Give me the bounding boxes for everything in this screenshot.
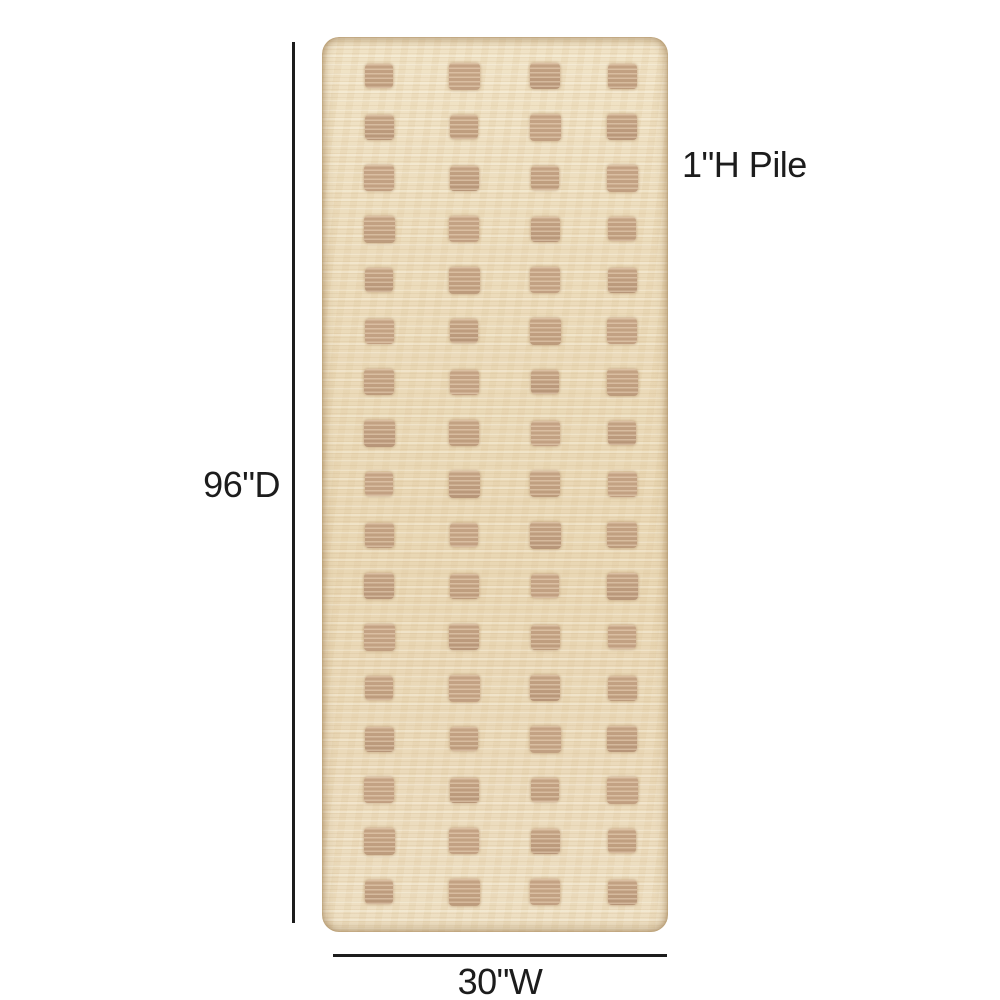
rug-pattern-square [530,267,560,293]
rug-pattern-square [449,879,480,906]
rug-pattern-square [531,778,559,802]
rug-pattern-square [449,267,480,294]
rug-pattern-square [608,217,636,241]
rug-pattern-square [607,522,637,548]
rug-pattern-square [608,421,636,445]
rug-pattern-square [530,675,560,701]
rug-pattern-square [530,726,561,753]
rug-pattern-square [608,625,636,649]
rug-pattern-square [449,420,479,446]
width-dimension-label: 30"W [400,964,600,1000]
rug-pattern-square [450,319,478,343]
rug-pattern-square [608,64,637,89]
rug-pattern-square [607,318,637,344]
rug-pattern-square [531,625,560,650]
rug-pattern-square [607,726,637,752]
rug-pattern-square [364,777,394,803]
rug-pattern-square [608,268,637,293]
rug-pattern-square [608,880,637,905]
rug-pattern-square [531,574,559,598]
rug-pattern-square [530,471,560,497]
rug-pattern-square [365,64,393,88]
rug-pattern-square [450,370,479,395]
rug-image [322,37,668,932]
rug-pattern-square [365,115,394,140]
rug-pattern-square [364,165,394,191]
depth-dimension-line [292,42,295,923]
rug-pattern-square [449,63,480,90]
rug-pattern-square [449,828,479,854]
rug-pattern-square [531,370,559,394]
rug-pattern-square [607,165,638,192]
rug-pattern-square [530,879,560,905]
rug-pattern [322,37,668,932]
rug-pattern-square [364,420,395,447]
rug-pattern-square [364,216,395,243]
rug-pattern-square [365,268,393,292]
rug-pattern-square [608,676,637,701]
rug-pattern-square [449,471,480,498]
rug-pattern-square [365,319,394,344]
rug-pattern-square [365,676,393,700]
rug-pattern-square [365,727,394,752]
rug-pattern-square [607,777,638,804]
depth-dimension-label: 96"D [120,467,280,503]
rug-pattern-square [365,880,393,904]
rug-dimension-diagram: 96"D 30"W 1"H Pile [0,0,1000,1000]
rug-pattern-square [450,523,478,547]
rug-pattern-square [530,63,560,89]
rug-pattern-square [364,369,394,395]
rug-pattern-square [449,675,480,702]
rug-pattern-square [531,829,560,854]
rug-pattern-square [530,522,561,549]
rug-pattern-square [450,115,478,139]
rug-pattern-square [450,727,478,751]
width-dimension-line [333,954,667,957]
rug-pattern-square [531,166,559,190]
rug-pattern-square [530,114,561,141]
rug-pattern-square [607,369,638,396]
rug-pattern-square [449,216,479,242]
rug-pattern-square [450,778,479,803]
rug-pattern-square [608,829,636,853]
rug-pattern-square [607,573,638,600]
rug-pattern-square [364,828,395,855]
rug-pattern-square [450,166,479,191]
rug-pattern-square [450,574,479,599]
rug-pattern-square [449,624,479,650]
rug-pattern-square [531,421,560,446]
rug-pattern-square [531,217,560,242]
rug-pattern-square [365,523,394,548]
rug-pattern-square [530,318,561,345]
rug-pattern-square [364,573,394,599]
rug-pattern-square [607,114,637,140]
rug-pattern-square [364,624,395,651]
rug-pattern-square [365,472,393,496]
rug-pattern-square [608,472,637,497]
pile-height-label: 1"H Pile [682,147,807,183]
